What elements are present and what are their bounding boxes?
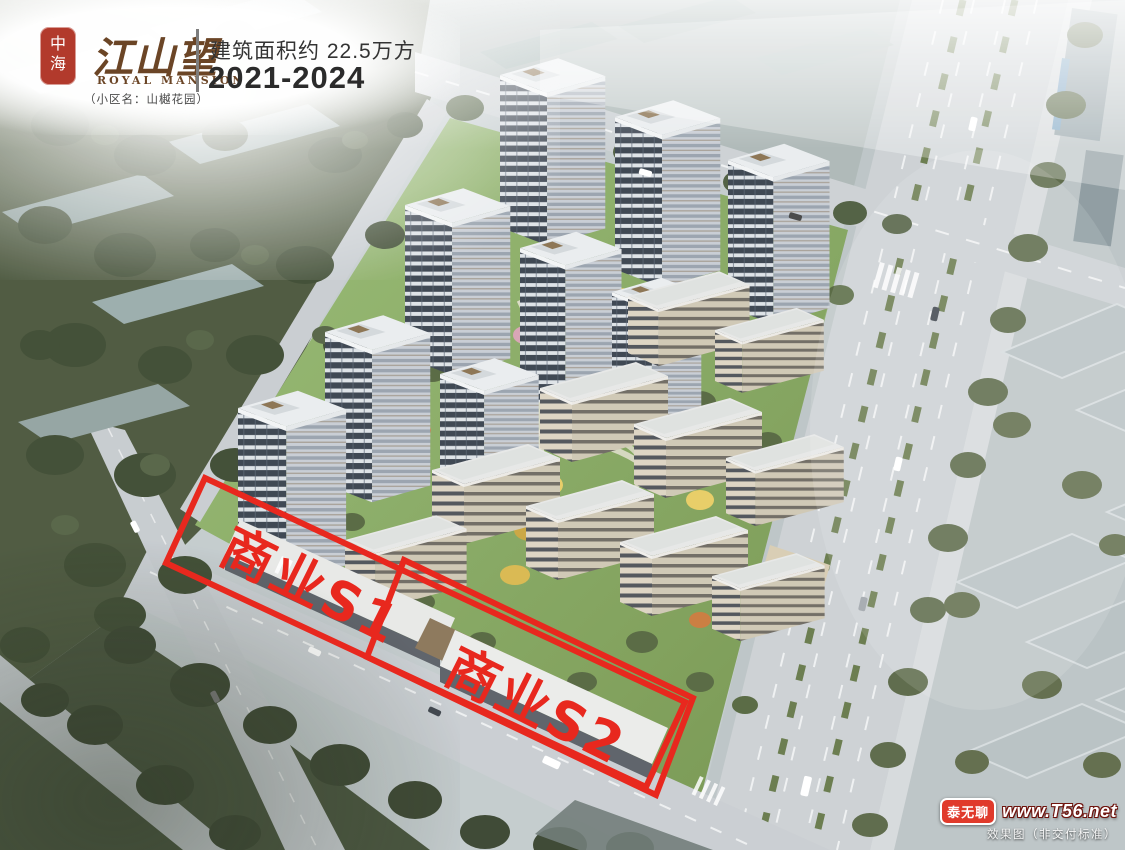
aerial-rendering-screenshot: 商业S1 商业S2 中海 江山望 ROYAL MANSION （小区名：山樾花园… — [0, 0, 1125, 850]
header-divider — [196, 29, 199, 92]
seal-text: 中海 — [50, 35, 67, 75]
community-note: （小区名：山樾花园） — [84, 91, 209, 107]
watermark-badge: 泰无聊 — [940, 798, 996, 825]
watermark-site-url: www.T56.net — [1002, 801, 1117, 822]
project-header: 中海 江山望 ROYAL MANSION （小区名：山樾花园） 建筑面积约 22… — [0, 0, 460, 135]
developer-seal-icon: 中海 — [40, 27, 76, 85]
watermark-disclaimer: 效果图（非交付标准） — [940, 826, 1117, 842]
construction-years: 2021-2024 — [208, 60, 365, 96]
watermark: 泰无聊 www.T56.net 效果图（非交付标准） — [940, 798, 1117, 842]
